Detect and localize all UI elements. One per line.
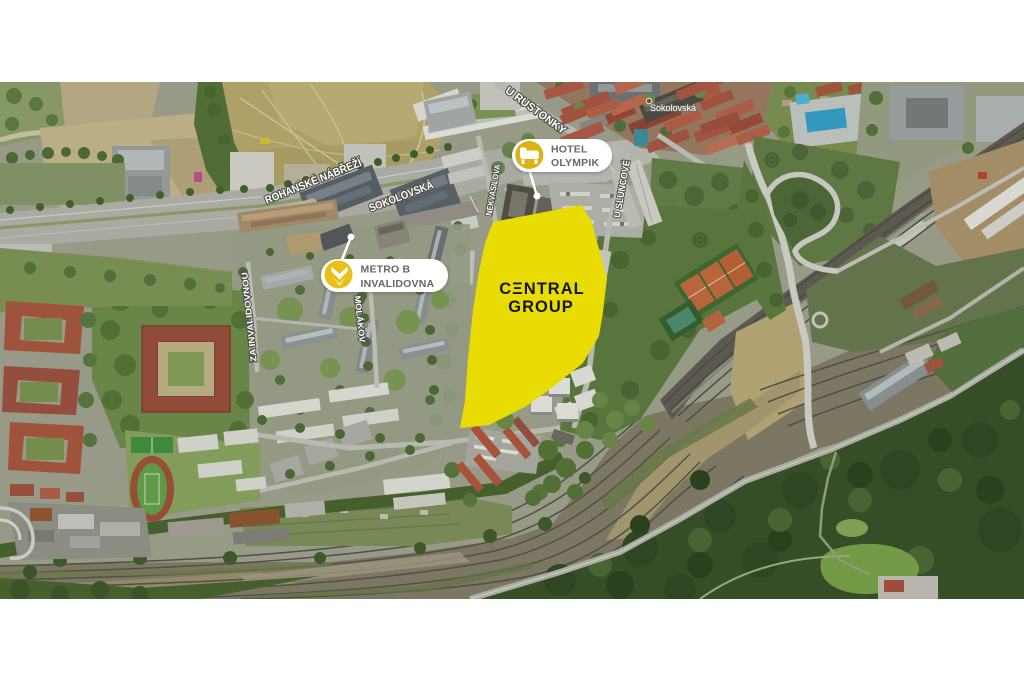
svg-text:Sokolovská: Sokolovská	[650, 103, 696, 113]
svg-text:OLYMPIK: OLYMPIK	[551, 157, 599, 169]
svg-text:INVALIDOVNA: INVALIDOVNA	[361, 278, 435, 290]
svg-text:HOTEL: HOTEL	[551, 144, 588, 156]
svg-text:METRO B: METRO B	[361, 264, 411, 276]
